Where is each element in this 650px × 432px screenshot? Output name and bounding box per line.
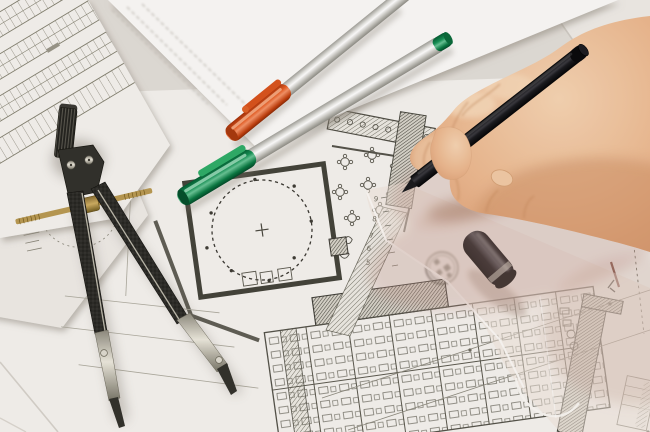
photo-architect-desk: 9 8 7 6 5 <box>0 0 650 432</box>
vignette <box>0 0 650 432</box>
scene-canvas: 9 8 7 6 5 <box>0 0 650 432</box>
